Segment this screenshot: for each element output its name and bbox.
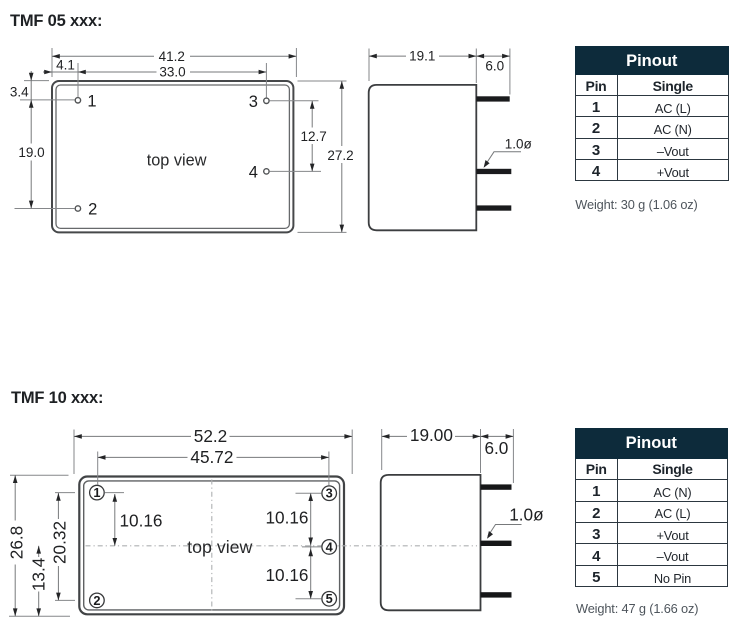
svg-text:4: 4 (249, 163, 258, 181)
svg-text:6.0: 6.0 (484, 438, 508, 458)
svg-text:12.7: 12.7 (300, 129, 326, 144)
svg-text:10.16: 10.16 (119, 511, 162, 531)
svg-text:45.72: 45.72 (190, 447, 233, 467)
svg-text:33.0: 33.0 (159, 65, 185, 80)
svg-text:52.2: 52.2 (194, 426, 227, 446)
svg-text:4: 4 (326, 539, 334, 554)
svg-text:1.0ø: 1.0ø (505, 136, 532, 151)
svg-text:3.4: 3.4 (10, 84, 29, 99)
svg-text:3: 3 (326, 486, 333, 501)
svg-text:19.00: 19.00 (410, 425, 453, 445)
svg-text:top view: top view (187, 537, 252, 557)
svg-text:3: 3 (249, 93, 258, 111)
svg-text:1: 1 (93, 485, 100, 500)
svg-text:2: 2 (88, 201, 97, 219)
svg-text:top view: top view (147, 151, 207, 169)
svg-text:5: 5 (326, 591, 333, 606)
svg-text:1.0ø: 1.0ø (509, 505, 544, 525)
svg-text:2: 2 (93, 593, 100, 608)
svg-text:13.4: 13.4 (29, 557, 49, 591)
svg-text:10.16: 10.16 (265, 507, 308, 527)
svg-text:19.1: 19.1 (409, 49, 435, 64)
svg-text:6.0: 6.0 (485, 58, 504, 73)
svg-text:4.1: 4.1 (56, 57, 75, 72)
svg-text:27.2: 27.2 (327, 148, 353, 163)
svg-text:41.2: 41.2 (159, 49, 185, 64)
svg-text:1: 1 (87, 92, 96, 110)
svg-text:19.0: 19.0 (18, 145, 44, 160)
svg-text:20.32: 20.32 (49, 521, 69, 564)
svg-text:26.8: 26.8 (7, 526, 27, 559)
svg-text:10.16: 10.16 (265, 565, 308, 585)
